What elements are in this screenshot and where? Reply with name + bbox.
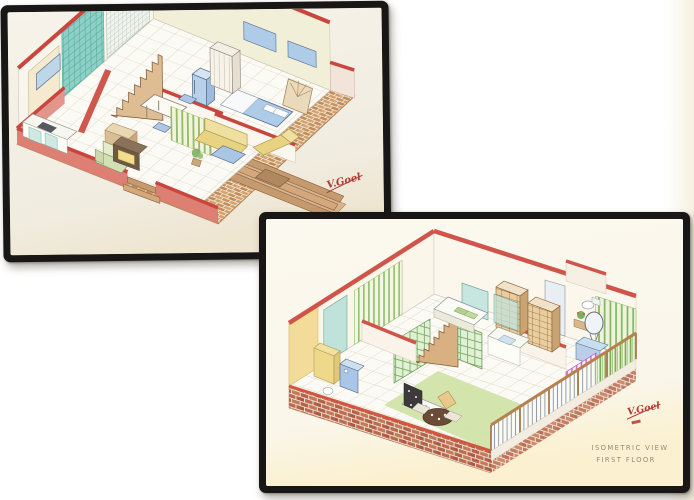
photo-frame-first-floor: V.Goel ISOMETRIC VIEW FIRST FLOOR — [259, 212, 690, 493]
first-floor-isometric-drawing: V.Goel ISOMETRIC VIEW FIRST FLOOR — [266, 219, 683, 486]
photo-collage: V.Goel — [0, 0, 694, 500]
wardrobe — [210, 41, 241, 93]
caption-line-1: ISOMETRIC VIEW — [592, 444, 669, 452]
paper-first-floor: V.Goel ISOMETRIC VIEW FIRST FLOOR — [266, 219, 683, 486]
caption-line-2: FIRST FLOOR — [596, 456, 656, 464]
